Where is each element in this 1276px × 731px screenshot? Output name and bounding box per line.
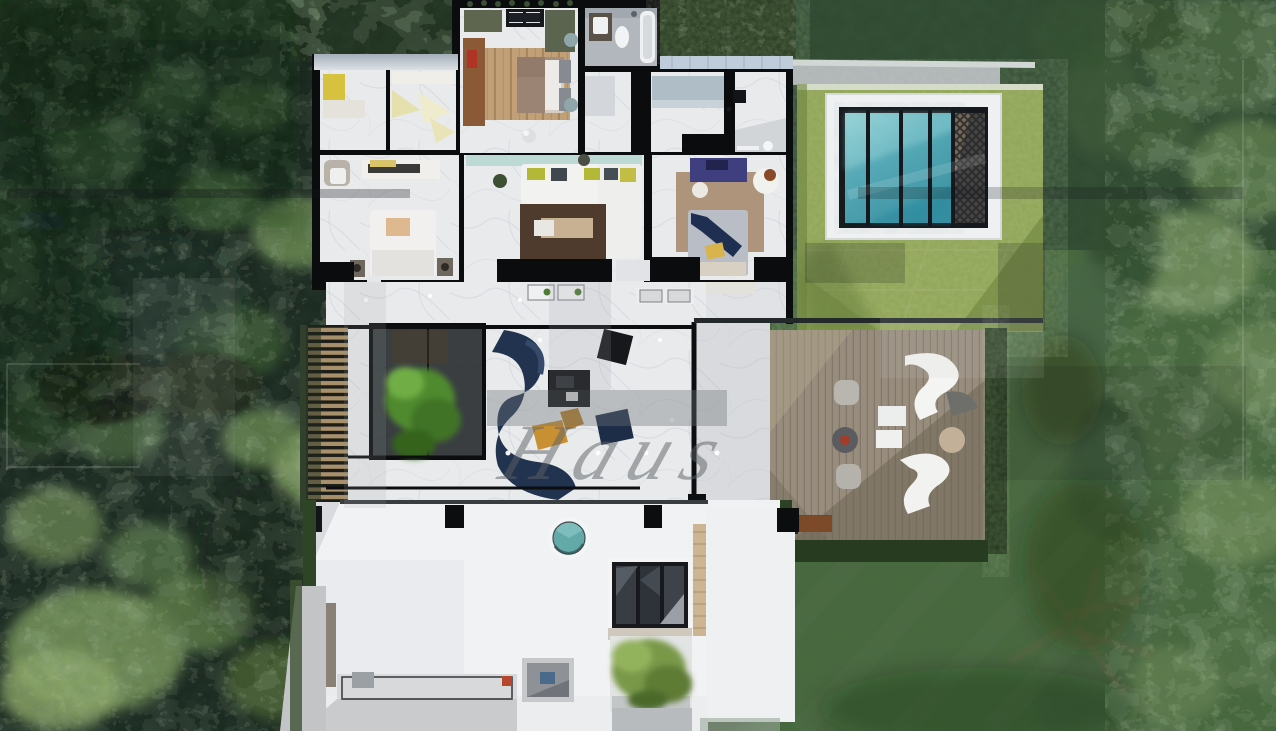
- svg-text:Haus: Haus: [489, 407, 747, 496]
